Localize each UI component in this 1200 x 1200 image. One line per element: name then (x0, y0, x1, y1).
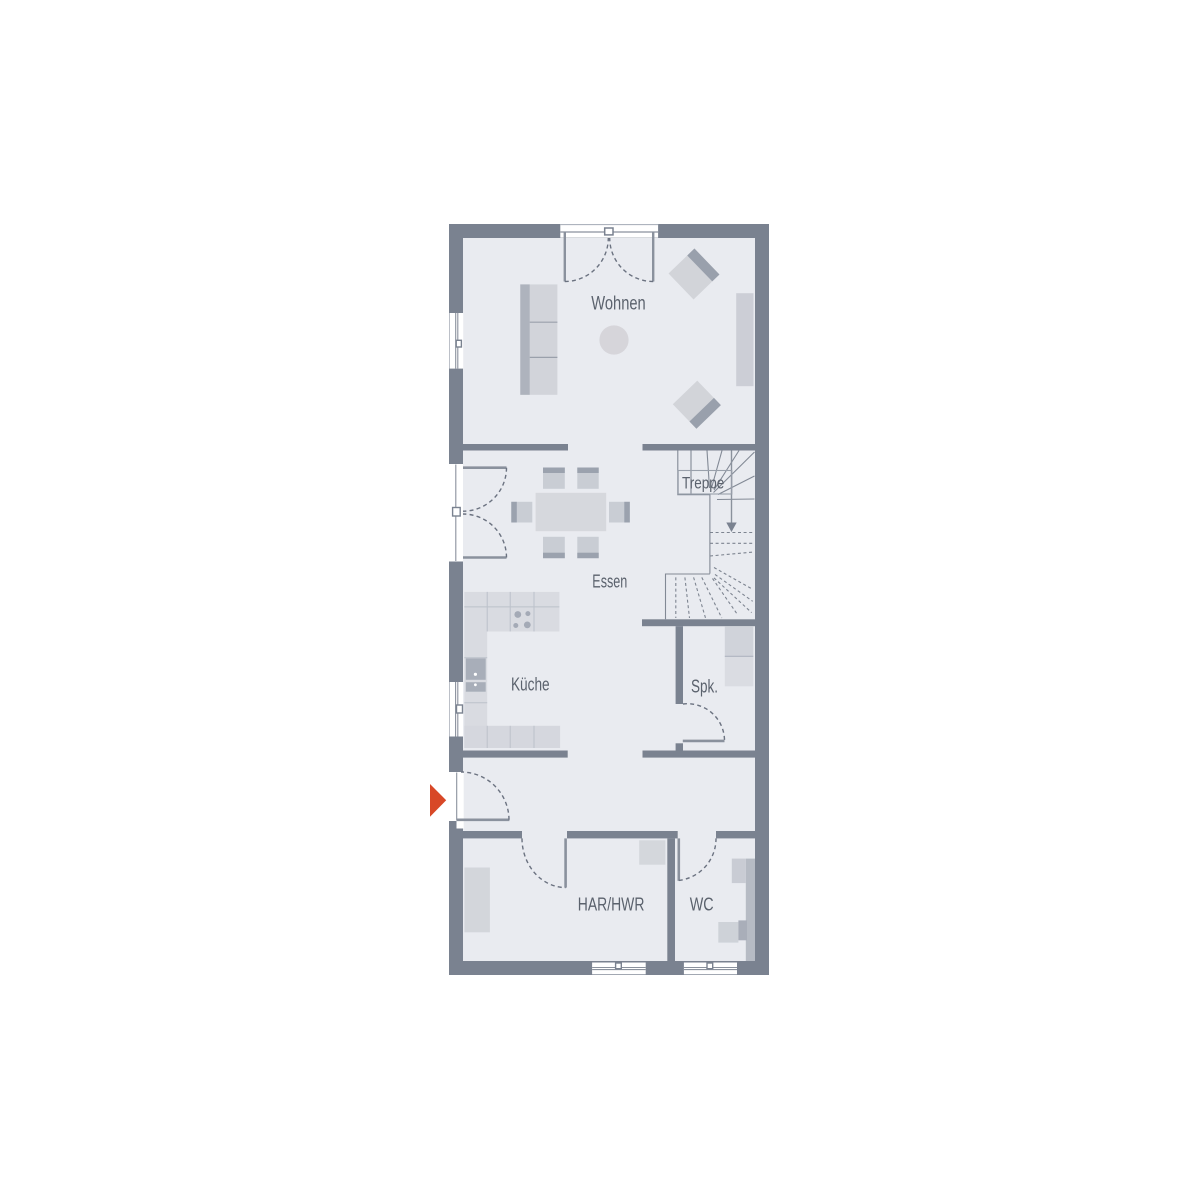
svg-text:Küche: Küche (511, 675, 550, 695)
svg-text:Treppe: Treppe (682, 473, 724, 492)
svg-text:Wohnen: Wohnen (591, 294, 645, 315)
svg-text:HAR/HWR: HAR/HWR (578, 894, 645, 914)
svg-text:WC: WC (690, 895, 714, 915)
svg-text:Spk.: Spk. (691, 676, 718, 696)
svg-text:Essen: Essen (592, 572, 627, 592)
